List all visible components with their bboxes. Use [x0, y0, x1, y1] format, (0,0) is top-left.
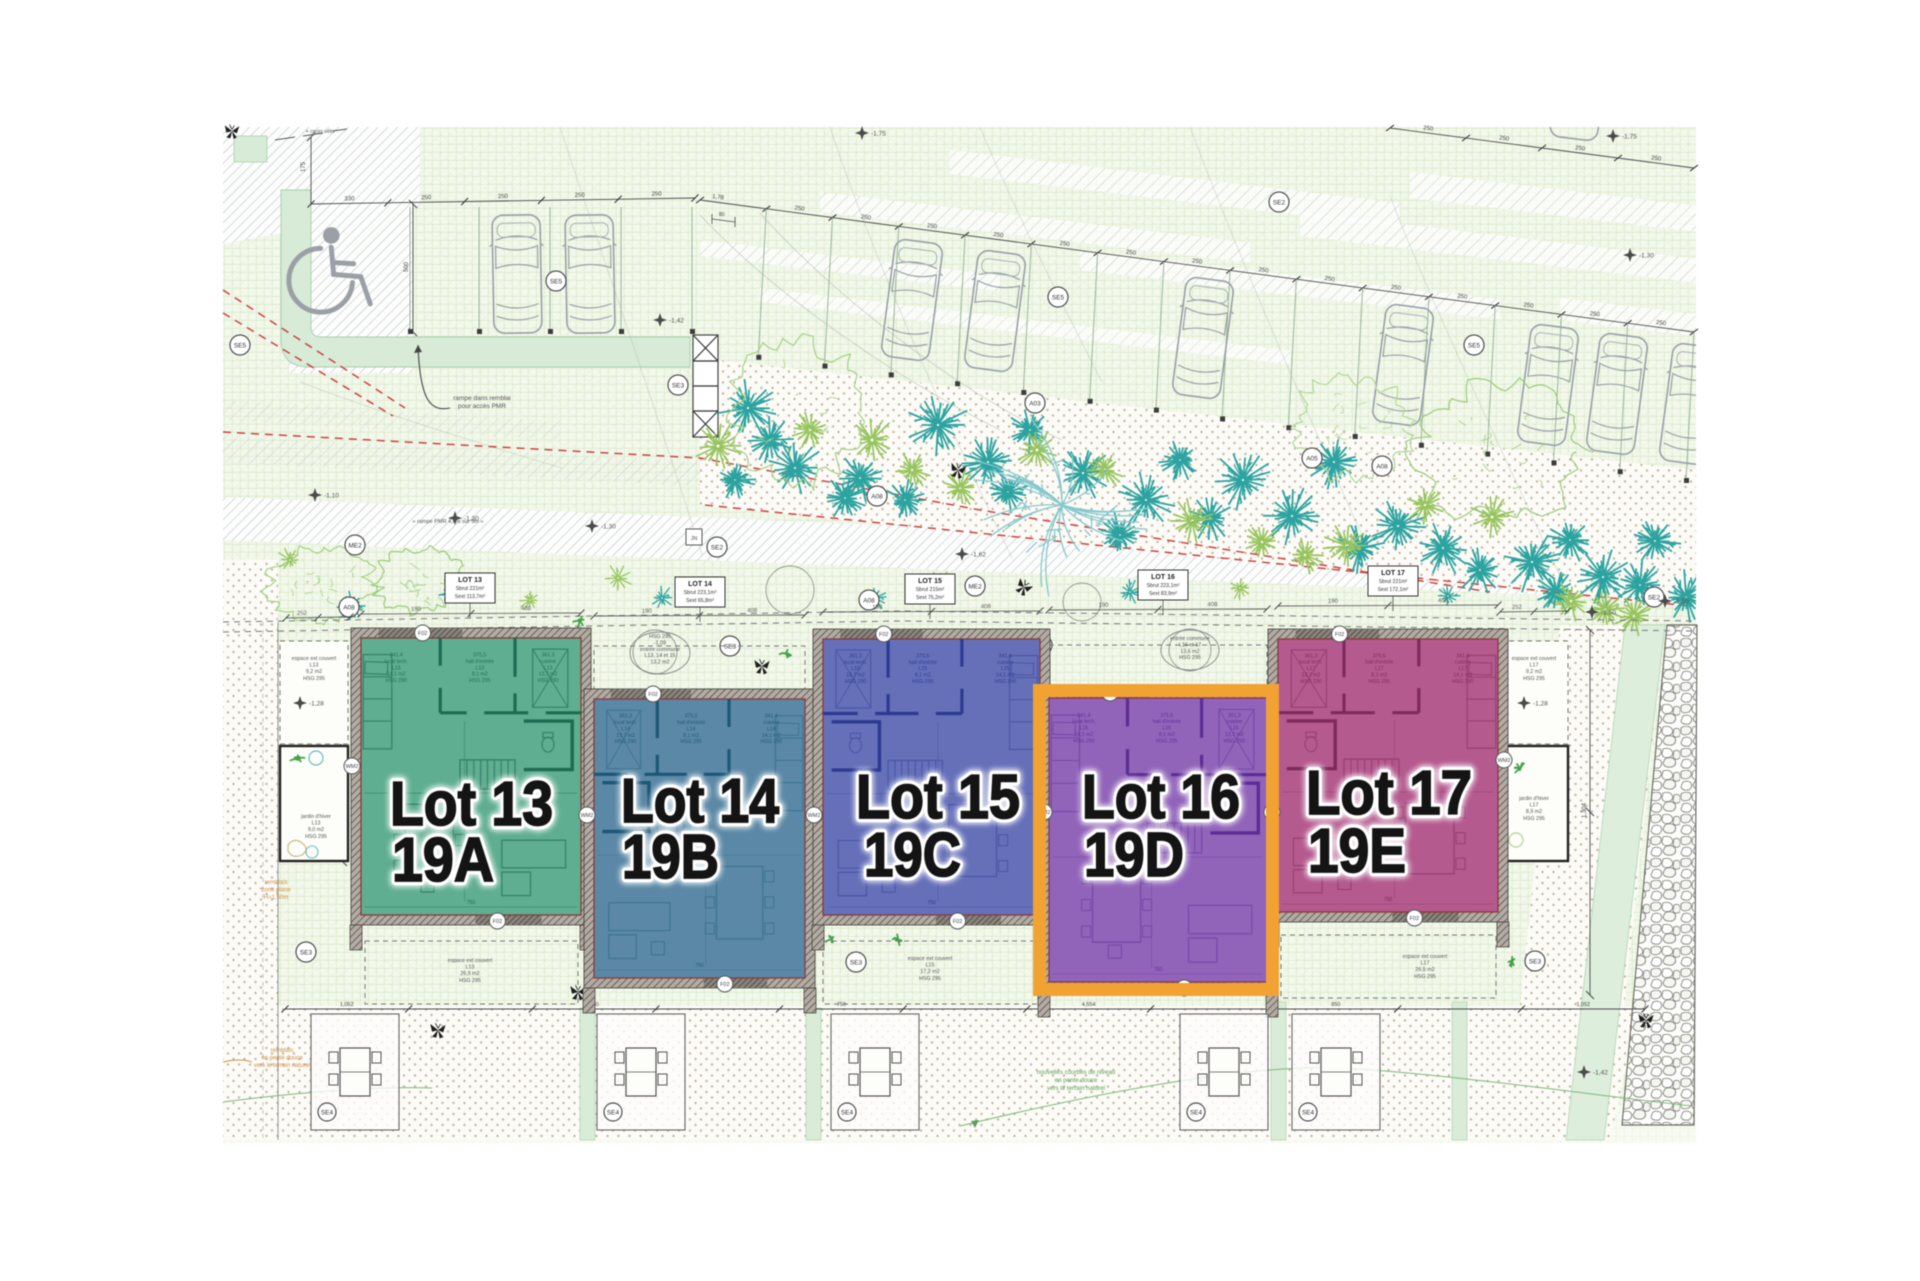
svg-text:hall d'entrée: hall d'entrée	[466, 659, 494, 665]
svg-text:espace ext couvert: espace ext couvert	[448, 958, 493, 964]
svg-text:190: 190	[411, 607, 422, 613]
svg-text:19E: 19E	[1308, 817, 1406, 886]
svg-text:WM2: WM2	[581, 813, 594, 819]
svg-text:L13: L13	[312, 821, 321, 827]
svg-text:375,5: 375,5	[1373, 653, 1386, 659]
svg-text:1,052: 1,052	[1576, 1002, 1590, 1008]
svg-text:vers le terrain naturel: vers le terrain naturel	[254, 1063, 310, 1069]
svg-text:750: 750	[1384, 897, 1393, 903]
svg-text:Sbrut 215m²: Sbrut 215m²	[916, 587, 945, 593]
svg-text:375,5: 375,5	[1160, 713, 1173, 719]
svg-text:A03: A03	[1029, 401, 1041, 408]
svg-text:250: 250	[575, 193, 586, 199]
svg-text:190: 190	[1098, 603, 1109, 609]
svg-text:750: 750	[927, 900, 936, 906]
svg-text:SE3: SE3	[672, 383, 685, 390]
svg-text:HSG 295: HSG 295	[305, 834, 327, 840]
svg-text:14,1 m2: 14,1 m2	[762, 733, 781, 739]
svg-text:80: 80	[719, 212, 725, 218]
svg-text:SE2: SE2	[1648, 595, 1661, 602]
svg-text:L13: L13	[466, 965, 475, 971]
svg-text:HSG 290: HSG 290	[1073, 738, 1094, 744]
svg-text:LOT 13: LOT 13	[458, 577, 482, 584]
svg-text:HSG 295: HSG 295	[1523, 676, 1545, 682]
svg-text:375,5: 375,5	[473, 653, 486, 659]
svg-text:408: 408	[747, 608, 758, 614]
svg-text:19B: 19B	[622, 823, 719, 892]
svg-text:9,2 m2: 9,2 m2	[306, 669, 322, 675]
svg-text:L15: L15	[1001, 666, 1010, 672]
svg-text:hall d'entrée: hall d'entrée	[909, 660, 937, 666]
svg-text:408: 408	[981, 604, 992, 610]
svg-text:espace ext couvert: espace ext couvert	[908, 956, 953, 962]
svg-text:19C: 19C	[864, 821, 961, 890]
svg-text:500: 500	[404, 261, 410, 272]
svg-text:HSG 295: HSG 295	[680, 739, 701, 745]
svg-text:cuisine: cuisine	[997, 660, 1013, 666]
svg-text:4,554: 4,554	[1082, 1002, 1096, 1008]
svg-text:SE3: SE3	[1529, 959, 1542, 966]
svg-text:HSG 290: HSG 290	[1452, 679, 1473, 685]
svg-text:14,1 m2: 14,1 m2	[387, 672, 406, 678]
svg-text:ME2: ME2	[968, 584, 982, 591]
svg-text:Sbrut 221m²: Sbrut 221m²	[1379, 579, 1408, 585]
svg-text:SE3: SE3	[300, 950, 313, 957]
svg-text:13,2 m2: 13,2 m2	[650, 660, 669, 666]
svg-text:13,7 m2: 13,7 m2	[539, 672, 558, 678]
svg-text:Sext 65,8m²: Sext 65,8m²	[686, 598, 714, 604]
svg-text:190: 190	[1328, 599, 1339, 605]
svg-text:14,1 m2: 14,1 m2	[1075, 732, 1094, 738]
svg-text:250: 250	[498, 194, 509, 200]
svg-text:250: 250	[421, 195, 432, 201]
svg-text:A08: A08	[863, 598, 875, 605]
svg-text:Sbrut 223,1m²: Sbrut 223,1m²	[684, 590, 717, 596]
svg-text:WM2: WM2	[808, 813, 821, 819]
svg-text:F02: F02	[648, 692, 657, 698]
svg-text:LOT 15: LOT 15	[918, 578, 942, 585]
svg-text:19A: 19A	[392, 826, 494, 895]
svg-text:341,4: 341,4	[1456, 653, 1469, 659]
svg-text:-1,09: -1,09	[654, 640, 666, 646]
svg-text:-1,62: -1,62	[971, 552, 986, 559]
svg-text:HSG 290: HSG 290	[615, 739, 636, 745]
svg-text:SE3: SE3	[850, 960, 863, 967]
svg-text:L17: L17	[1530, 663, 1539, 669]
svg-text:1,304: 1,304	[1582, 802, 1588, 818]
svg-text:341,4: 341,4	[999, 653, 1012, 659]
svg-text:19D: 19D	[1084, 821, 1184, 890]
svg-text:SE5: SE5	[234, 343, 247, 350]
svg-text:ME2: ME2	[348, 543, 362, 550]
svg-text:HSG 290: HSG 290	[761, 739, 782, 745]
svg-text:L17: L17	[1421, 961, 1430, 967]
svg-text:13,7 m2: 13,7 m2	[616, 733, 635, 739]
svg-text:8,1 m2: 8,1 m2	[683, 733, 699, 739]
svg-text:hall d'entrée: hall d'entrée	[1365, 660, 1393, 666]
svg-text:L13, 14 et 15: L13, 14 et 15	[645, 653, 676, 659]
svg-text:408: 408	[521, 606, 532, 612]
svg-text:L14: L14	[687, 726, 696, 732]
svg-text:Sext 75,2m²: Sext 75,2m²	[916, 595, 944, 601]
svg-text:375,5: 375,5	[685, 714, 698, 720]
svg-text:local tech.: local tech.	[614, 720, 637, 726]
svg-text:-1,42: -1,42	[1593, 1070, 1608, 1077]
svg-text:SE4: SE4	[321, 1110, 334, 1117]
svg-text:13,7 m2: 13,7 m2	[846, 673, 865, 679]
svg-text:remblais: remblais	[265, 880, 288, 886]
svg-text:8,1 m2: 8,1 m2	[1371, 673, 1387, 679]
svg-text:A05: A05	[1306, 456, 1318, 463]
svg-text:HSG 290: HSG 290	[386, 678, 407, 684]
svg-text:cuisine: cuisine	[540, 659, 556, 665]
svg-text:361,3: 361,3	[542, 653, 555, 659]
svg-text:361,3: 361,3	[619, 714, 632, 720]
svg-text:8,1 m2: 8,1 m2	[1159, 732, 1175, 738]
svg-text:-1,10: -1,10	[324, 493, 339, 500]
svg-text:190: 190	[872, 605, 883, 611]
svg-text:L16: L16	[1230, 726, 1239, 732]
svg-text:14,1 m2: 14,1 m2	[996, 673, 1015, 679]
svg-text:-1,28: -1,28	[1533, 701, 1548, 708]
svg-text:espace ext couvert: espace ext couvert	[1403, 954, 1448, 960]
svg-text:Sbrut 221m²: Sbrut 221m²	[456, 586, 485, 592]
svg-text:SE4: SE4	[1302, 1110, 1315, 1117]
svg-text:HSG 290: HSG 290	[845, 679, 866, 685]
svg-text:L14: L14	[621, 726, 630, 732]
svg-text:408: 408	[1438, 598, 1449, 604]
svg-text:SE2: SE2	[711, 545, 724, 552]
svg-text:A08: A08	[871, 494, 883, 501]
svg-text:Sbrut 223,1m²: Sbrut 223,1m²	[1147, 583, 1180, 589]
svg-text:F02: F02	[720, 982, 729, 988]
svg-text:17,2 m2: 17,2 m2	[920, 969, 939, 975]
svg-text:HSG 295: HSG 295	[1156, 738, 1177, 744]
svg-text:L13: L13	[544, 665, 553, 671]
svg-text:HSG 295: HSG 295	[649, 634, 671, 640]
svg-text:L16 et 17: L16 et 17	[1179, 642, 1201, 648]
svg-text:8,9 m2: 8,9 m2	[1526, 809, 1542, 815]
svg-text:13,7 m2: 13,7 m2	[1225, 732, 1244, 738]
svg-text:341,4: 341,4	[1077, 713, 1090, 719]
svg-text:HSG 295: HSG 295	[919, 976, 941, 982]
svg-text:L13: L13	[475, 665, 484, 671]
svg-text:espace ext couvert: espace ext couvert	[292, 656, 337, 662]
svg-text:-1,50: -1,50	[1674, 599, 1689, 606]
svg-text:HSG 295: HSG 295	[303, 676, 325, 682]
svg-text:zone plane: zone plane	[261, 888, 291, 894]
svg-text:8,1 m2: 8,1 m2	[915, 673, 931, 679]
svg-text:L17: L17	[1307, 666, 1316, 672]
svg-text:HSG 290: HSG 290	[537, 678, 558, 684]
svg-text:local tech.: local tech.	[385, 659, 408, 665]
svg-text:341,4: 341,4	[390, 653, 403, 659]
svg-text:-1,28: -1,28	[309, 701, 324, 708]
svg-text:HSG 290: HSG 290	[1300, 679, 1321, 685]
svg-text:en pente douce: en pente douce	[261, 1056, 303, 1062]
svg-text:175: 175	[301, 161, 307, 172]
svg-text:rampe dans remblai: rampe dans remblai	[453, 395, 510, 402]
svg-text:SE5: SE5	[1052, 295, 1065, 302]
svg-text:190: 190	[642, 609, 653, 615]
svg-text:330: 330	[344, 196, 355, 202]
svg-text:750: 750	[837, 1002, 846, 1008]
svg-text:local tech.: local tech.	[844, 660, 867, 666]
svg-text:SE5: SE5	[550, 279, 563, 286]
svg-text:L15: L15	[926, 963, 935, 969]
svg-text:361,3: 361,3	[1305, 653, 1318, 659]
svg-text:entrée commune: entrée commune	[1170, 636, 1210, 642]
svg-text:HSG 295: HSG 295	[459, 978, 481, 984]
svg-text:-1,50: -1,50	[1601, 610, 1616, 617]
svg-text:WM2: WM2	[346, 764, 359, 770]
svg-text:F02: F02	[879, 632, 888, 638]
svg-text:750: 750	[467, 900, 476, 906]
svg-text:HSG 295: HSG 295	[1179, 655, 1201, 661]
svg-text:L17: L17	[1375, 666, 1384, 672]
svg-text:1,052: 1,052	[340, 1002, 354, 1008]
svg-text:26,5 m2: 26,5 m2	[1415, 967, 1434, 973]
svg-text:HSG 295: HSG 295	[1523, 816, 1545, 822]
svg-text:Sext 172,1m²: Sext 172,1m²	[1378, 587, 1409, 593]
svg-text:SE3: SE3	[724, 644, 737, 651]
svg-text:9,2 m2: 9,2 m2	[1526, 669, 1542, 675]
svg-text:8,1 m2: 8,1 m2	[472, 672, 488, 678]
svg-text:remblais: remblais	[271, 1048, 294, 1054]
svg-text:SE5: SE5	[1468, 343, 1481, 350]
svg-text:HSG 295: HSG 295	[1369, 679, 1390, 685]
svg-text:13,7 m2: 13,7 m2	[1302, 673, 1321, 679]
svg-text:9,0 m2: 9,0 m2	[308, 827, 324, 833]
svg-text:250: 250	[652, 192, 663, 198]
svg-text:LOT 17: LOT 17	[1381, 570, 1405, 577]
svg-text:LOT 14: LOT 14	[688, 581, 712, 588]
svg-text:L14: L14	[767, 726, 776, 732]
svg-text:hall d'entrée: hall d'entrée	[1153, 719, 1181, 725]
svg-text:+ racer vélo: + racer vélo	[306, 129, 335, 135]
svg-text:« rampe PMR 4,0% sur 9m »: « rampe PMR 4,0% sur 9m »	[413, 519, 484, 525]
svg-text:entrée commune: entrée commune	[640, 647, 680, 653]
svg-text:HSG 290: HSG 290	[1224, 738, 1245, 744]
svg-text:L17: L17	[1530, 803, 1539, 809]
svg-text:SE4: SE4	[607, 1110, 620, 1117]
svg-text:cuisine: cuisine	[763, 720, 779, 726]
svg-text:Sext 113,7m²: Sext 113,7m²	[455, 594, 486, 600]
svg-text:750: 750	[695, 963, 704, 969]
svg-text:341,4: 341,4	[765, 714, 778, 720]
svg-text:-1,42: -1,42	[669, 318, 684, 325]
svg-text:JN: JN	[691, 536, 698, 542]
svg-text:L13: L13	[392, 665, 401, 671]
svg-text:jardin d'hiver: jardin d'hiver	[300, 814, 331, 820]
svg-text:cuisine: cuisine	[1226, 719, 1242, 725]
svg-text:F02: F02	[1410, 916, 1419, 922]
svg-text:408: 408	[1207, 602, 1218, 608]
svg-text:F02: F02	[1335, 632, 1344, 638]
svg-text:HSG 295: HSG 295	[912, 679, 933, 685]
svg-text:local tech.: local tech.	[1299, 660, 1322, 666]
svg-text:252: 252	[297, 611, 308, 617]
svg-text:L15: L15	[851, 666, 860, 672]
svg-text:F02: F02	[418, 631, 427, 637]
svg-text:-1,30: -1,30	[601, 524, 616, 531]
svg-text:-1,75: -1,75	[1622, 134, 1637, 141]
svg-text:-1,30: -1,30	[1639, 253, 1654, 260]
svg-text:L16: L16	[1080, 726, 1089, 732]
svg-text:SE2: SE2	[1273, 200, 1286, 207]
svg-text:14,1 m2: 14,1 m2	[1453, 673, 1472, 679]
svg-text:F02: F02	[493, 919, 502, 925]
svg-text:750: 750	[1154, 967, 1163, 973]
svg-text:13,6 m2: 13,6 m2	[1180, 649, 1199, 655]
svg-text:hall d'entrée: hall d'entrée	[677, 720, 705, 726]
svg-text:local tech.: local tech.	[1072, 719, 1095, 725]
svg-text:nouvelles courbes de niveau: nouvelles courbes de niveau	[1037, 1069, 1116, 1076]
svg-text:F02: F02	[953, 919, 962, 925]
svg-text:Sext 83,9m²: Sext 83,9m²	[1149, 591, 1177, 597]
svg-text:WM2: WM2	[1498, 758, 1511, 764]
svg-text:jardin d'hiver: jardin d'hiver	[1518, 796, 1549, 802]
svg-text:LOT 16: LOT 16	[1151, 574, 1175, 581]
svg-text:pour accès PMR: pour accès PMR	[458, 403, 506, 410]
svg-text:L15: L15	[918, 666, 927, 672]
svg-text:cuisine: cuisine	[1455, 660, 1471, 666]
svg-text:A08: A08	[1376, 464, 1388, 471]
svg-text:HSG 290: HSG 290	[995, 679, 1016, 685]
svg-text:252: 252	[1512, 605, 1523, 611]
svg-text:-1,75: -1,75	[871, 131, 886, 138]
svg-text:850: 850	[1331, 1002, 1340, 1008]
svg-text:en pente douce: en pente douce	[1055, 1077, 1098, 1084]
svg-text:HSG 295: HSG 295	[1414, 974, 1436, 980]
svg-text:HSG 295: HSG 295	[469, 678, 490, 684]
svg-text:361,3: 361,3	[849, 653, 862, 659]
svg-text:L16: L16	[1162, 726, 1171, 732]
svg-text:espace ext couvert: espace ext couvert	[1512, 656, 1557, 662]
svg-text:375,5: 375,5	[916, 653, 929, 659]
svg-text:H=1,50m: H=1,50m	[264, 895, 289, 901]
svg-text:vers le terrain naturel: vers le terrain naturel	[1047, 1085, 1105, 1092]
svg-text:SE4: SE4	[1190, 1110, 1203, 1117]
svg-text:361,3: 361,3	[1228, 713, 1241, 719]
svg-text:26,9 m2: 26,9 m2	[460, 971, 479, 977]
svg-text:A08: A08	[343, 605, 355, 612]
svg-text:L13: L13	[310, 663, 319, 669]
svg-text:SE4: SE4	[841, 1110, 854, 1117]
svg-text:L17: L17	[1458, 666, 1467, 672]
